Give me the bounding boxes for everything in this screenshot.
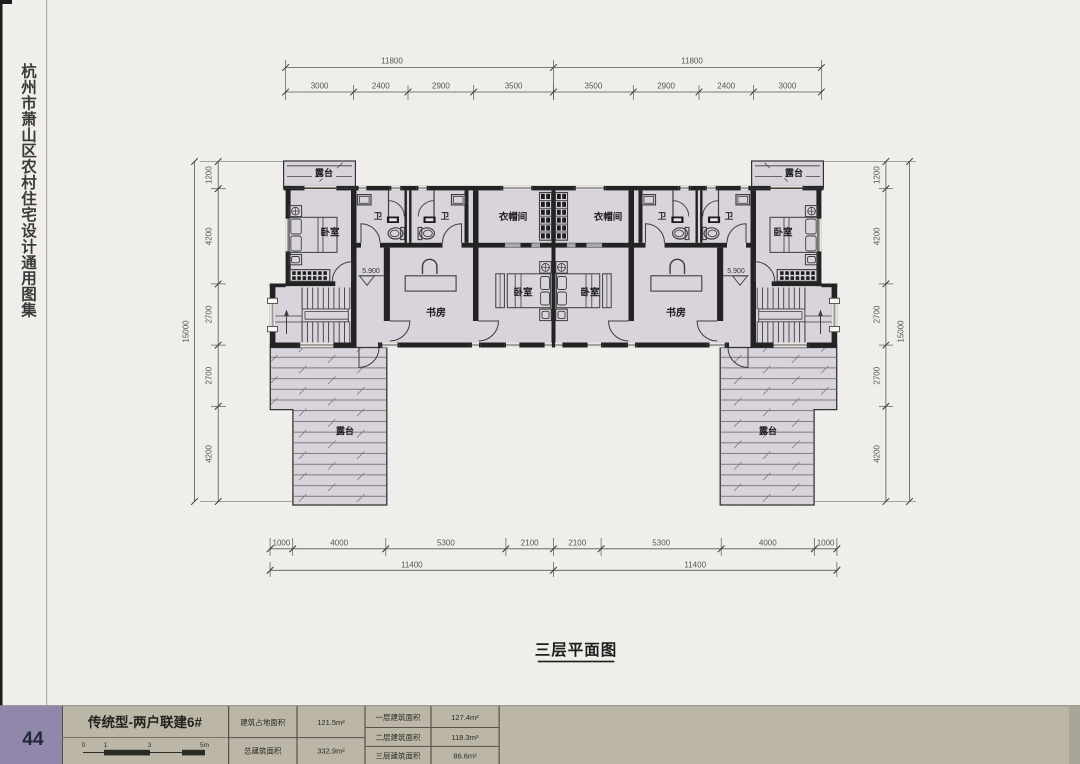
svg-text:露台: 露台 — [785, 167, 803, 178]
svg-text:书房: 书房 — [666, 306, 686, 319]
svg-text:0: 0 — [82, 742, 86, 749]
svg-text:86.6m²: 86.6m² — [453, 752, 477, 761]
svg-text:卧室: 卧室 — [580, 287, 600, 299]
svg-text:区: 区 — [21, 142, 37, 160]
svg-text:121.5m²: 121.5m² — [317, 718, 345, 727]
svg-text:卫: 卫 — [725, 211, 734, 221]
svg-text:11400: 11400 — [401, 560, 423, 569]
svg-text:农: 农 — [20, 157, 37, 176]
svg-text:露台: 露台 — [759, 425, 777, 436]
svg-text:露台: 露台 — [336, 425, 354, 436]
svg-text:卫: 卫 — [658, 211, 667, 221]
svg-text:州: 州 — [20, 78, 37, 96]
svg-text:宅: 宅 — [21, 205, 37, 224]
svg-text:集: 集 — [20, 301, 37, 320]
svg-text:1200: 1200 — [205, 166, 214, 184]
svg-text:5.900: 5.900 — [362, 268, 380, 275]
svg-text:4000: 4000 — [759, 538, 777, 547]
svg-text:卧室: 卧室 — [320, 227, 340, 239]
svg-text:2400: 2400 — [717, 82, 735, 91]
svg-text:44: 44 — [22, 729, 44, 750]
svg-text:3500: 3500 — [585, 82, 603, 91]
svg-text:15000: 15000 — [182, 320, 191, 343]
svg-text:二层建筑面积: 二层建筑面积 — [376, 732, 421, 742]
svg-text:4200: 4200 — [873, 444, 882, 462]
svg-text:1000: 1000 — [273, 538, 291, 547]
svg-text:用: 用 — [21, 270, 37, 288]
svg-text:5300: 5300 — [437, 538, 455, 547]
svg-text:2100: 2100 — [521, 538, 539, 547]
svg-text:11800: 11800 — [381, 57, 403, 66]
svg-text:11800: 11800 — [681, 57, 703, 66]
svg-text:卫: 卫 — [374, 211, 383, 221]
svg-text:2900: 2900 — [657, 82, 675, 91]
svg-text:5m: 5m — [200, 742, 209, 749]
svg-text:露台: 露台 — [315, 167, 333, 178]
svg-text:设: 设 — [21, 222, 37, 240]
svg-text:通: 通 — [21, 254, 37, 272]
svg-text:3000: 3000 — [311, 82, 329, 91]
svg-text:3: 3 — [148, 742, 152, 749]
svg-text:山: 山 — [21, 126, 37, 144]
svg-text:三层平面图: 三层平面图 — [535, 641, 618, 659]
svg-text:衣帽间: 衣帽间 — [594, 211, 623, 223]
svg-text:4000: 4000 — [330, 538, 348, 547]
svg-text:2100: 2100 — [568, 538, 586, 547]
svg-text:11400: 11400 — [684, 560, 706, 569]
svg-text:127.4m²: 127.4m² — [451, 713, 479, 722]
svg-text:图: 图 — [21, 286, 37, 304]
svg-text:1: 1 — [104, 742, 108, 749]
svg-text:4200: 4200 — [205, 444, 214, 462]
svg-text:计: 计 — [21, 237, 37, 256]
svg-text:建筑占地面积: 建筑占地面积 — [240, 717, 285, 727]
svg-text:2700: 2700 — [205, 305, 214, 323]
svg-text:村: 村 — [21, 173, 37, 192]
svg-text:3000: 3000 — [779, 82, 797, 91]
svg-text:5300: 5300 — [652, 538, 670, 547]
svg-text:2700: 2700 — [873, 366, 882, 384]
svg-text:一层建筑面积: 一层建筑面积 — [376, 712, 421, 722]
svg-text:4200: 4200 — [873, 227, 882, 245]
svg-text:三层建筑面积: 三层建筑面积 — [376, 751, 421, 761]
svg-text:2400: 2400 — [372, 82, 390, 91]
svg-text:传统型-两户联建6#: 传统型-两户联建6# — [87, 714, 203, 730]
svg-text:2700: 2700 — [873, 305, 882, 323]
svg-text:1200: 1200 — [873, 166, 882, 184]
svg-text:卫: 卫 — [441, 211, 450, 221]
svg-text:萧: 萧 — [21, 109, 37, 128]
svg-text:3500: 3500 — [505, 82, 523, 91]
svg-text:市: 市 — [21, 93, 37, 112]
svg-text:332.9m²: 332.9m² — [317, 747, 345, 756]
svg-text:1000: 1000 — [817, 538, 835, 547]
svg-text:2700: 2700 — [205, 366, 214, 384]
svg-text:杭: 杭 — [21, 62, 37, 81]
svg-text:2900: 2900 — [432, 82, 450, 91]
svg-text:5.900: 5.900 — [727, 268, 745, 275]
svg-text:118.3m²: 118.3m² — [452, 733, 479, 742]
svg-text:15000: 15000 — [897, 320, 906, 343]
svg-text:书房: 书房 — [426, 306, 446, 319]
svg-text:衣帽间: 衣帽间 — [499, 211, 528, 223]
svg-text:卧室: 卧室 — [513, 287, 533, 299]
svg-text:卧室: 卧室 — [773, 227, 793, 239]
svg-text:住: 住 — [21, 189, 37, 208]
svg-text:4200: 4200 — [205, 227, 214, 245]
svg-text:总建筑面积: 总建筑面积 — [244, 746, 282, 756]
